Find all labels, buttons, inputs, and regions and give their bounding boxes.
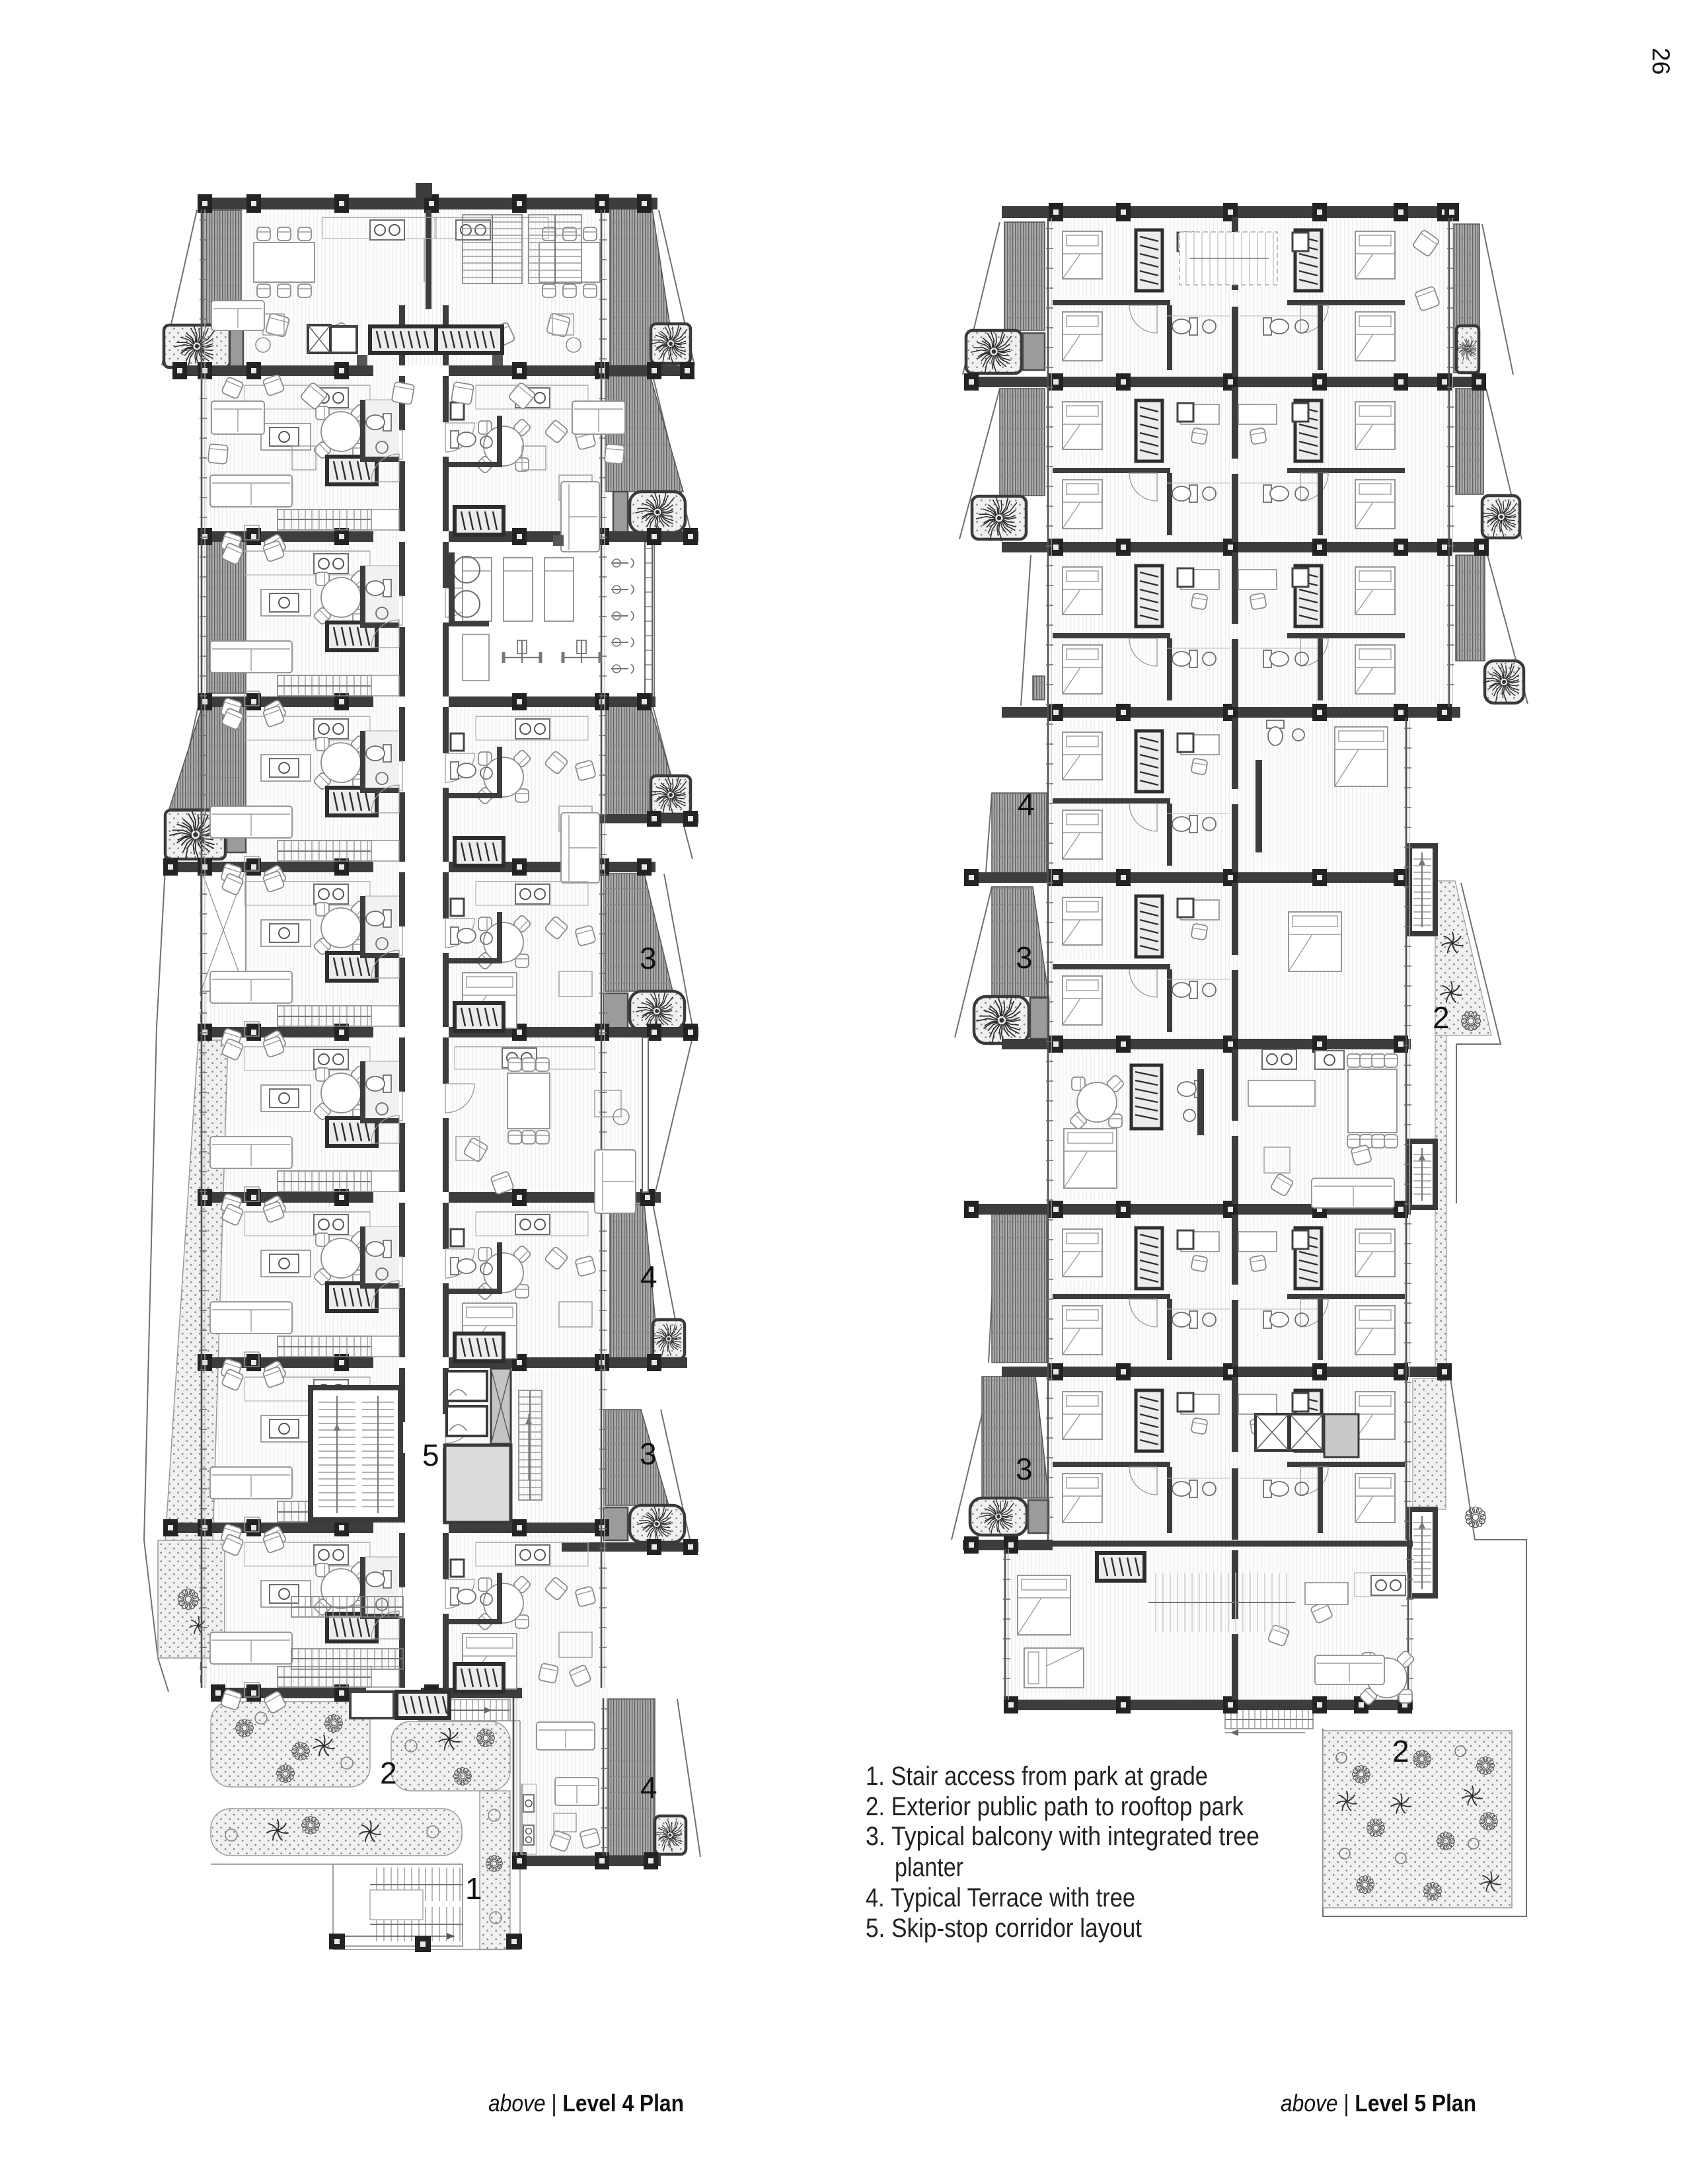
svg-text:3. Typical balcony with integr: 3. Typical balcony with integrated tree: [866, 1822, 1259, 1851]
svg-text:2: 2: [1392, 1734, 1409, 1768]
svg-text:2. Exterior public path to roo: 2. Exterior public path to rooftop park: [866, 1792, 1244, 1821]
svg-text:5: 5: [422, 1438, 439, 1472]
svg-text:2: 2: [1433, 1000, 1450, 1035]
svg-text:4: 4: [640, 1260, 657, 1294]
svg-text:1. Stair access from park at g: 1. Stair access from park at grade: [866, 1762, 1208, 1791]
svg-text:3: 3: [640, 1437, 657, 1471]
svg-text:26: 26: [1647, 48, 1674, 75]
svg-text:3: 3: [640, 941, 657, 975]
svg-text:5. Skip-stop corridor layout: 5. Skip-stop corridor layout: [866, 1914, 1142, 1943]
svg-text:4. Typical Terrace with tree: 4. Typical Terrace with tree: [866, 1883, 1135, 1912]
svg-text:2: 2: [380, 1756, 397, 1790]
svg-text:3: 3: [1016, 1452, 1033, 1486]
svg-text:planter: planter: [895, 1853, 963, 1882]
svg-text:4: 4: [1018, 787, 1035, 821]
svg-text:3: 3: [1016, 940, 1033, 975]
svg-text:4: 4: [640, 1770, 657, 1805]
svg-text:1: 1: [465, 1871, 482, 1906]
svg-text:above | Level 5 Plan: above | Level 5 Plan: [1281, 2090, 1476, 2117]
svg-text:above | Level 4 Plan: above | Level 4 Plan: [488, 2090, 684, 2117]
